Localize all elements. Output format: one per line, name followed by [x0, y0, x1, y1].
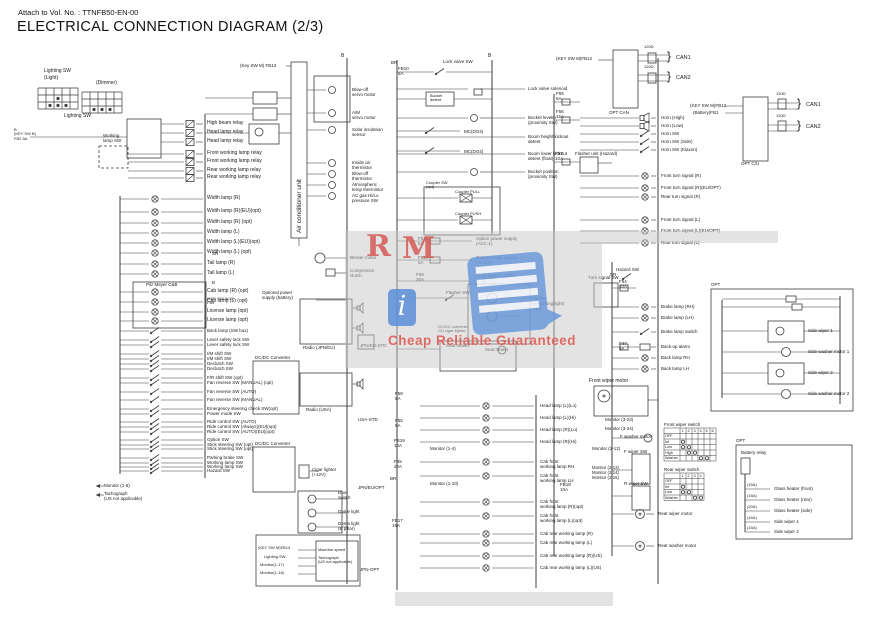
diagram-text: B [488, 54, 491, 60]
diagram-text: Dome light (B pillar) [338, 521, 360, 531]
left-switches-label: Fan reverse SW (AUTO) [207, 389, 256, 394]
diagram-text: Turn signal SW [588, 275, 619, 280]
head-lamps-label: Head lamp (L)(Lo) [540, 403, 577, 408]
diagram-text: 120Ω [644, 65, 654, 69]
diagram-text: BR [390, 476, 396, 481]
table-header-cell: 3 [694, 429, 696, 433]
lock-valve-label: Bucket leveler (proximity SW) [528, 115, 558, 125]
diagram-text: Working lamp SW [103, 133, 121, 143]
diagram-text: Lighting SW [264, 555, 286, 559]
diagram-text: Flasher SW [446, 290, 470, 295]
table-header-cell: 5 [706, 429, 708, 433]
diagram-text: Blower motor [350, 255, 377, 260]
diagram-text: (KEY SW ACC) FB5 [207, 297, 235, 306]
diagram-text: Lighting SW [44, 69, 71, 75]
diagram-text: 120Ω [644, 45, 654, 49]
table-header-cell: 2 [688, 429, 690, 433]
horns-label: Horn (High) [661, 115, 684, 120]
diagram-text: Cigar lighter (+24V) [476, 273, 515, 278]
ac-components-label: A/M servo motor [352, 110, 376, 120]
glass-heater-label: Side wiper 2 [774, 529, 799, 534]
diagram-text: Front wiper motor [589, 379, 628, 385]
diagram-text: (KEY SW M)FB12 [690, 103, 726, 108]
table-header-cell: 6 [712, 429, 714, 433]
diagram-text: R wiper SW [624, 481, 648, 486]
diagram-text: F56 15A [556, 109, 564, 119]
diagram-text: OPT [736, 438, 745, 443]
lighting-relays-label: Head lamp relay [207, 130, 243, 136]
head-lamps-label: Head lamp (R)(Lo) [540, 427, 577, 432]
fuse-rating: (15A) [747, 526, 757, 530]
diagram-text: Dome light [338, 509, 360, 514]
left-lamps-label: Width lamp (L)(EU)(opt) [207, 240, 260, 246]
horns-label: Horn (Low) [661, 123, 683, 128]
diagram-text: Tachograph (US not applicable) [318, 556, 352, 565]
table-header-cell: 1 [682, 429, 684, 433]
diagram-text: CAN2 [806, 124, 821, 130]
table-row-label: Washer [665, 456, 678, 460]
head-lamps-label: Cab front working lamp (R)(opt) [540, 499, 583, 509]
table-row-label: Int [665, 440, 669, 444]
fuse-rating: (15A) [747, 483, 757, 487]
diagram-text: Side wiper 1 [808, 328, 833, 333]
glass-heater-label: Side wiper 1 [774, 519, 799, 524]
diagram-text: OPT CAN [609, 110, 629, 115]
table-row-label: OFF [665, 434, 673, 438]
diagram-text: OPT C/U [741, 161, 759, 166]
working-relays-label: Front working lamp relay [207, 151, 262, 157]
lighting-relays-label: Head lamp relay [207, 139, 243, 145]
left-lamps-label: Width lamp (R) [207, 196, 240, 202]
diagram-text: Hazard SW [616, 267, 639, 272]
turn-signals-label: Front turn signal (L) [661, 217, 700, 222]
diagram-text: USA-STD [358, 417, 378, 422]
lock-valve-label: Boom height kickout detent [528, 134, 569, 144]
lock-valve-label: Bucket position (proximity SW) [528, 169, 559, 179]
ac-components-label: Blow-off thermistor [352, 171, 372, 181]
head-lamps-label: Cab rear working lamp (L) [540, 540, 592, 545]
diagram-text: Coupler PUSH [455, 212, 481, 216]
diagram-text: Bucket detent [430, 94, 442, 103]
diagram-text: DC/DC converter CU cigar lighter [438, 325, 468, 334]
left-lamps-label: Tail lamp (R) [207, 261, 235, 267]
brake-back-label: Brake lamp switch [661, 329, 698, 334]
diagram-text: Compressor clutch [350, 268, 375, 278]
table-header-cell: 4 [700, 429, 702, 433]
brake-back-label: Back lamp LH [661, 366, 689, 371]
horns-label: Horn SW (Side) [661, 139, 693, 144]
diagram-text: B [341, 54, 344, 60]
working-relays-label: Rear working lamp relay [207, 168, 261, 174]
head-lamps-label: Cab front working lamp (L)(opt) [540, 513, 583, 523]
ac-components-label: Blow-off servo motor [352, 87, 376, 97]
table-row-label: High [665, 451, 673, 455]
diagram-text: Tachograph (US not applicable) [104, 491, 142, 501]
wiper-switch-table-title: Rear wiper switch [664, 467, 700, 472]
diagram-text: JPN-OPT [360, 567, 379, 572]
diagram-text: SR [212, 251, 218, 256]
diagram-text: JPN/EU/OPT [358, 485, 385, 490]
diagram-text: F wiper SW [624, 449, 647, 454]
brake-back-label: Back lamp RH [661, 355, 690, 360]
left-switches-label: Hazard SW [207, 468, 230, 473]
ac-components-label: AC gas Hi/Lo pressure SW [352, 193, 379, 203]
diagram-text: Optional power supply (battery) [262, 290, 293, 300]
table-row-label: Int [665, 485, 669, 489]
head-lamps-label: Cab rear working lamp (L)(US) [540, 565, 601, 570]
labels-layer: High beam relayHead lamp relayHead lamp … [0, 0, 880, 618]
diagram-text: F59 20A [416, 272, 424, 282]
diagram-text: Radio (JPN/EU) [303, 345, 335, 350]
left-switches-label: Declutch SW [207, 366, 233, 371]
table-row-label: Low [665, 490, 672, 494]
diagram-text: } [797, 97, 801, 110]
diagram-text: Flasher unit (Hazard) [575, 151, 617, 156]
left-switches-label: Stick steering SW (opt) [207, 446, 253, 451]
wiper-switch-table-title: Front wiper switch [664, 422, 700, 427]
diagram-text: B [212, 280, 215, 285]
glass-heater-label: Glass heater (rear) [774, 497, 812, 502]
diagram-text: CAN2 [676, 75, 691, 81]
table-header-cell: 2 [688, 474, 690, 478]
ac-components-label: Solar insolation sensor [352, 127, 383, 137]
working-relays-label: Rear working lamp relay [207, 175, 261, 181]
diagram-text: FB17 15A [392, 518, 403, 528]
diagram-text: Door switch [338, 490, 351, 500]
diagram-text: Side washer motor 2 [808, 391, 849, 396]
rear-wipers-label: Rear wiper motor [658, 511, 693, 516]
horns-label: Horn SW (Klaxon) [661, 147, 697, 152]
diagram-text: 120Ω [776, 92, 786, 96]
diagram-text: MC(DO4) [464, 129, 483, 134]
diagram-text: F57 10A [555, 151, 563, 161]
left-lamps-label: License lamp (opt) [207, 318, 248, 324]
diagram-text: F55 5A [395, 418, 403, 428]
diagram-text: (KEY SW M)FB12 [556, 56, 592, 61]
fuse-rating: (15A) [747, 494, 757, 498]
diagram-text: FB18 10A [560, 482, 571, 492]
diagram-text: Flasher (Revolving light) (opt) [532, 296, 564, 311]
diagram-text: Pilz Meyer C&B [146, 282, 178, 287]
diagram-text: Seat heater [446, 343, 469, 348]
left-switches-label: Fan reverse SW (MANUAL) [207, 397, 263, 402]
diagram-text: F washer motor [620, 434, 651, 439]
diagram-text: B (KEY SW B) FB2 5A [14, 128, 36, 141]
diagram-text: F45 20A [394, 459, 402, 469]
diagram-text: Coupler SW (opt) [426, 181, 448, 190]
diagram-text: 120Ω [776, 114, 786, 118]
table-header-cell: 3 [694, 474, 696, 478]
diagram-text: Monitor(1-18) [260, 571, 284, 575]
fuse-rating: (20A) [747, 505, 757, 509]
fuse-rating: (15A) [747, 516, 757, 520]
diagram-text: (Dimmer) [96, 81, 117, 87]
diagram-text: MC(DO4) [464, 149, 483, 154]
glass-heater-label: Glass heater (front) [774, 486, 813, 491]
left-lamps-label: Cab lamp (R) (opt) [207, 289, 248, 295]
diagram-text: (Key SW M) FB13 [240, 63, 276, 68]
diagram-text: Radio (USA) [306, 407, 331, 412]
diagram-text: } [667, 70, 671, 83]
diagram-text: Battery relay [741, 450, 766, 455]
diagram-text: Machine speed [318, 548, 345, 552]
diagram-text: Monitor (1-4) [430, 446, 456, 451]
diagram-text: Monitor(1-17) [260, 563, 284, 567]
diagram-text: Monitor (2-12) [592, 446, 620, 451]
brake-back-label: Back-up alarm [661, 344, 690, 349]
diagram-text: Side washer motor 1 [808, 349, 849, 354]
diagram-text: (Light) [44, 76, 58, 82]
diagram-text: Monitor (3-24) [605, 426, 633, 431]
diagram-text: Option power supply (ACC-1) [476, 236, 517, 246]
diagram-text: FB19 10A [394, 438, 405, 448]
diagram-text: F58 5A [395, 391, 403, 401]
turn-signals-label: Rear turn signal (L) [661, 240, 700, 245]
diagram-text: Cigar lighter (+12V) [312, 467, 336, 477]
lighting-relays-label: High beam relay [207, 121, 243, 127]
diagram-text: F54 10A [619, 279, 627, 289]
diagram-text: Monitor (1-10) [430, 481, 458, 486]
diagram-text: F513 5A [418, 255, 428, 265]
working-relays-label: Front working lamp relay [207, 159, 262, 165]
table-row-label: OFF [665, 479, 673, 483]
diagram-text: Seat heater [485, 347, 508, 352]
diagram-text: FB10 5A [398, 66, 409, 76]
diagram-text: Lock valve SW [443, 59, 473, 64]
diagram-text: JPN/EU-STD [360, 343, 387, 348]
diagram-text: Monitor (1-6) [104, 483, 130, 488]
turn-signals-label: Rear turn signal (R) [661, 194, 700, 199]
diagram-text: OPT [711, 282, 720, 287]
left-lamps-label: Width lamp (R) (opt) [207, 220, 252, 226]
left-switches-label: Power mode SW [207, 411, 241, 416]
turn-signals-label: Front turn signal (R) [661, 173, 701, 178]
diagram-text: Air conditioner unit [296, 179, 303, 233]
left-lamps-label: Tail lamp (L) [207, 271, 234, 277]
diagram-text: F512 5A [418, 236, 428, 246]
turn-signals-label: Front turn signal (R)(EU/OPT) [661, 185, 721, 190]
diagram-text: (KEY SW M)FB13 [258, 546, 290, 550]
diagram-text: } [667, 50, 671, 63]
left-lamps-label: License lamp (opt) [207, 309, 248, 315]
left-switches-label: Back lamp (SW box) [207, 328, 248, 333]
diagram-text: Monitor (2-15) [592, 476, 619, 481]
left-switches-label: Fan reverse SW (MANUAL) (opt) [207, 380, 273, 385]
left-lamps-label: Width lamp (L) [207, 230, 240, 236]
table-header-cell: 1 [682, 474, 684, 478]
left-lamps-label: Width lamp (R)(EU)(opt) [207, 209, 261, 215]
diagram-text: CAN1 [676, 55, 691, 61]
diagram-text: Option power supply (ACC2) [476, 255, 517, 265]
ac-components-label: Inside air thermistor [352, 160, 372, 170]
glass-heater-label: Glass heater (side) [774, 508, 812, 513]
horns-label: Horn SW [661, 131, 679, 136]
diagram-text: Coupler PULL [455, 190, 480, 194]
left-switches-label: Lever safety lock SW [207, 342, 249, 347]
diagram-text: DC/DC Converter [255, 355, 290, 360]
brake-back-label: Brake lamp (RH) [661, 304, 695, 309]
diagram-text: DC/DC Converter [255, 441, 290, 446]
head-lamps-label: Head lamp (R)(Hi) [540, 439, 577, 444]
diagram-text: (Battery)FB1 [693, 110, 719, 115]
head-lamps-label: Cab rear working lamp (R) [540, 531, 593, 536]
diagram-text: Lighting SW [64, 114, 91, 120]
diagram-text: F55 5A [556, 91, 564, 101]
diagram-text: Side wiper 2 [808, 370, 833, 375]
left-switches-label: Ride control SW (AUTO)(EU)(opt) [207, 429, 275, 434]
table-row-label: Washer [665, 496, 678, 500]
rear-wipers-label: Rear washer motor [658, 543, 696, 548]
diagram-text: } [797, 119, 801, 132]
head-lamps-label: Cab front working lamp RH [540, 459, 574, 469]
diagram-text: CAN1 [806, 102, 821, 108]
table-row-label: Low [665, 445, 672, 449]
turn-signals-label: Front turn signal (L)(EU/OPT) [661, 228, 720, 233]
diagram-text: Monitor (3-23) [605, 417, 633, 422]
head-lamps-label: Cab rear working lamp (R)(US) [540, 553, 602, 558]
head-lamps-label: Head lamp (L)(Hi) [540, 415, 576, 420]
ac-components-label: Atmospheric temp thermistor [352, 182, 383, 192]
diagram-canvas: Attach to Vol. No. : TTNFB50-EN-00 ELECT… [0, 0, 880, 618]
table-header-cell: 4 [700, 474, 702, 478]
diagram-text: BR [391, 60, 397, 65]
diagram-text: F47 5A [619, 341, 627, 351]
brake-back-label: Brake lamp (LH) [661, 315, 694, 320]
